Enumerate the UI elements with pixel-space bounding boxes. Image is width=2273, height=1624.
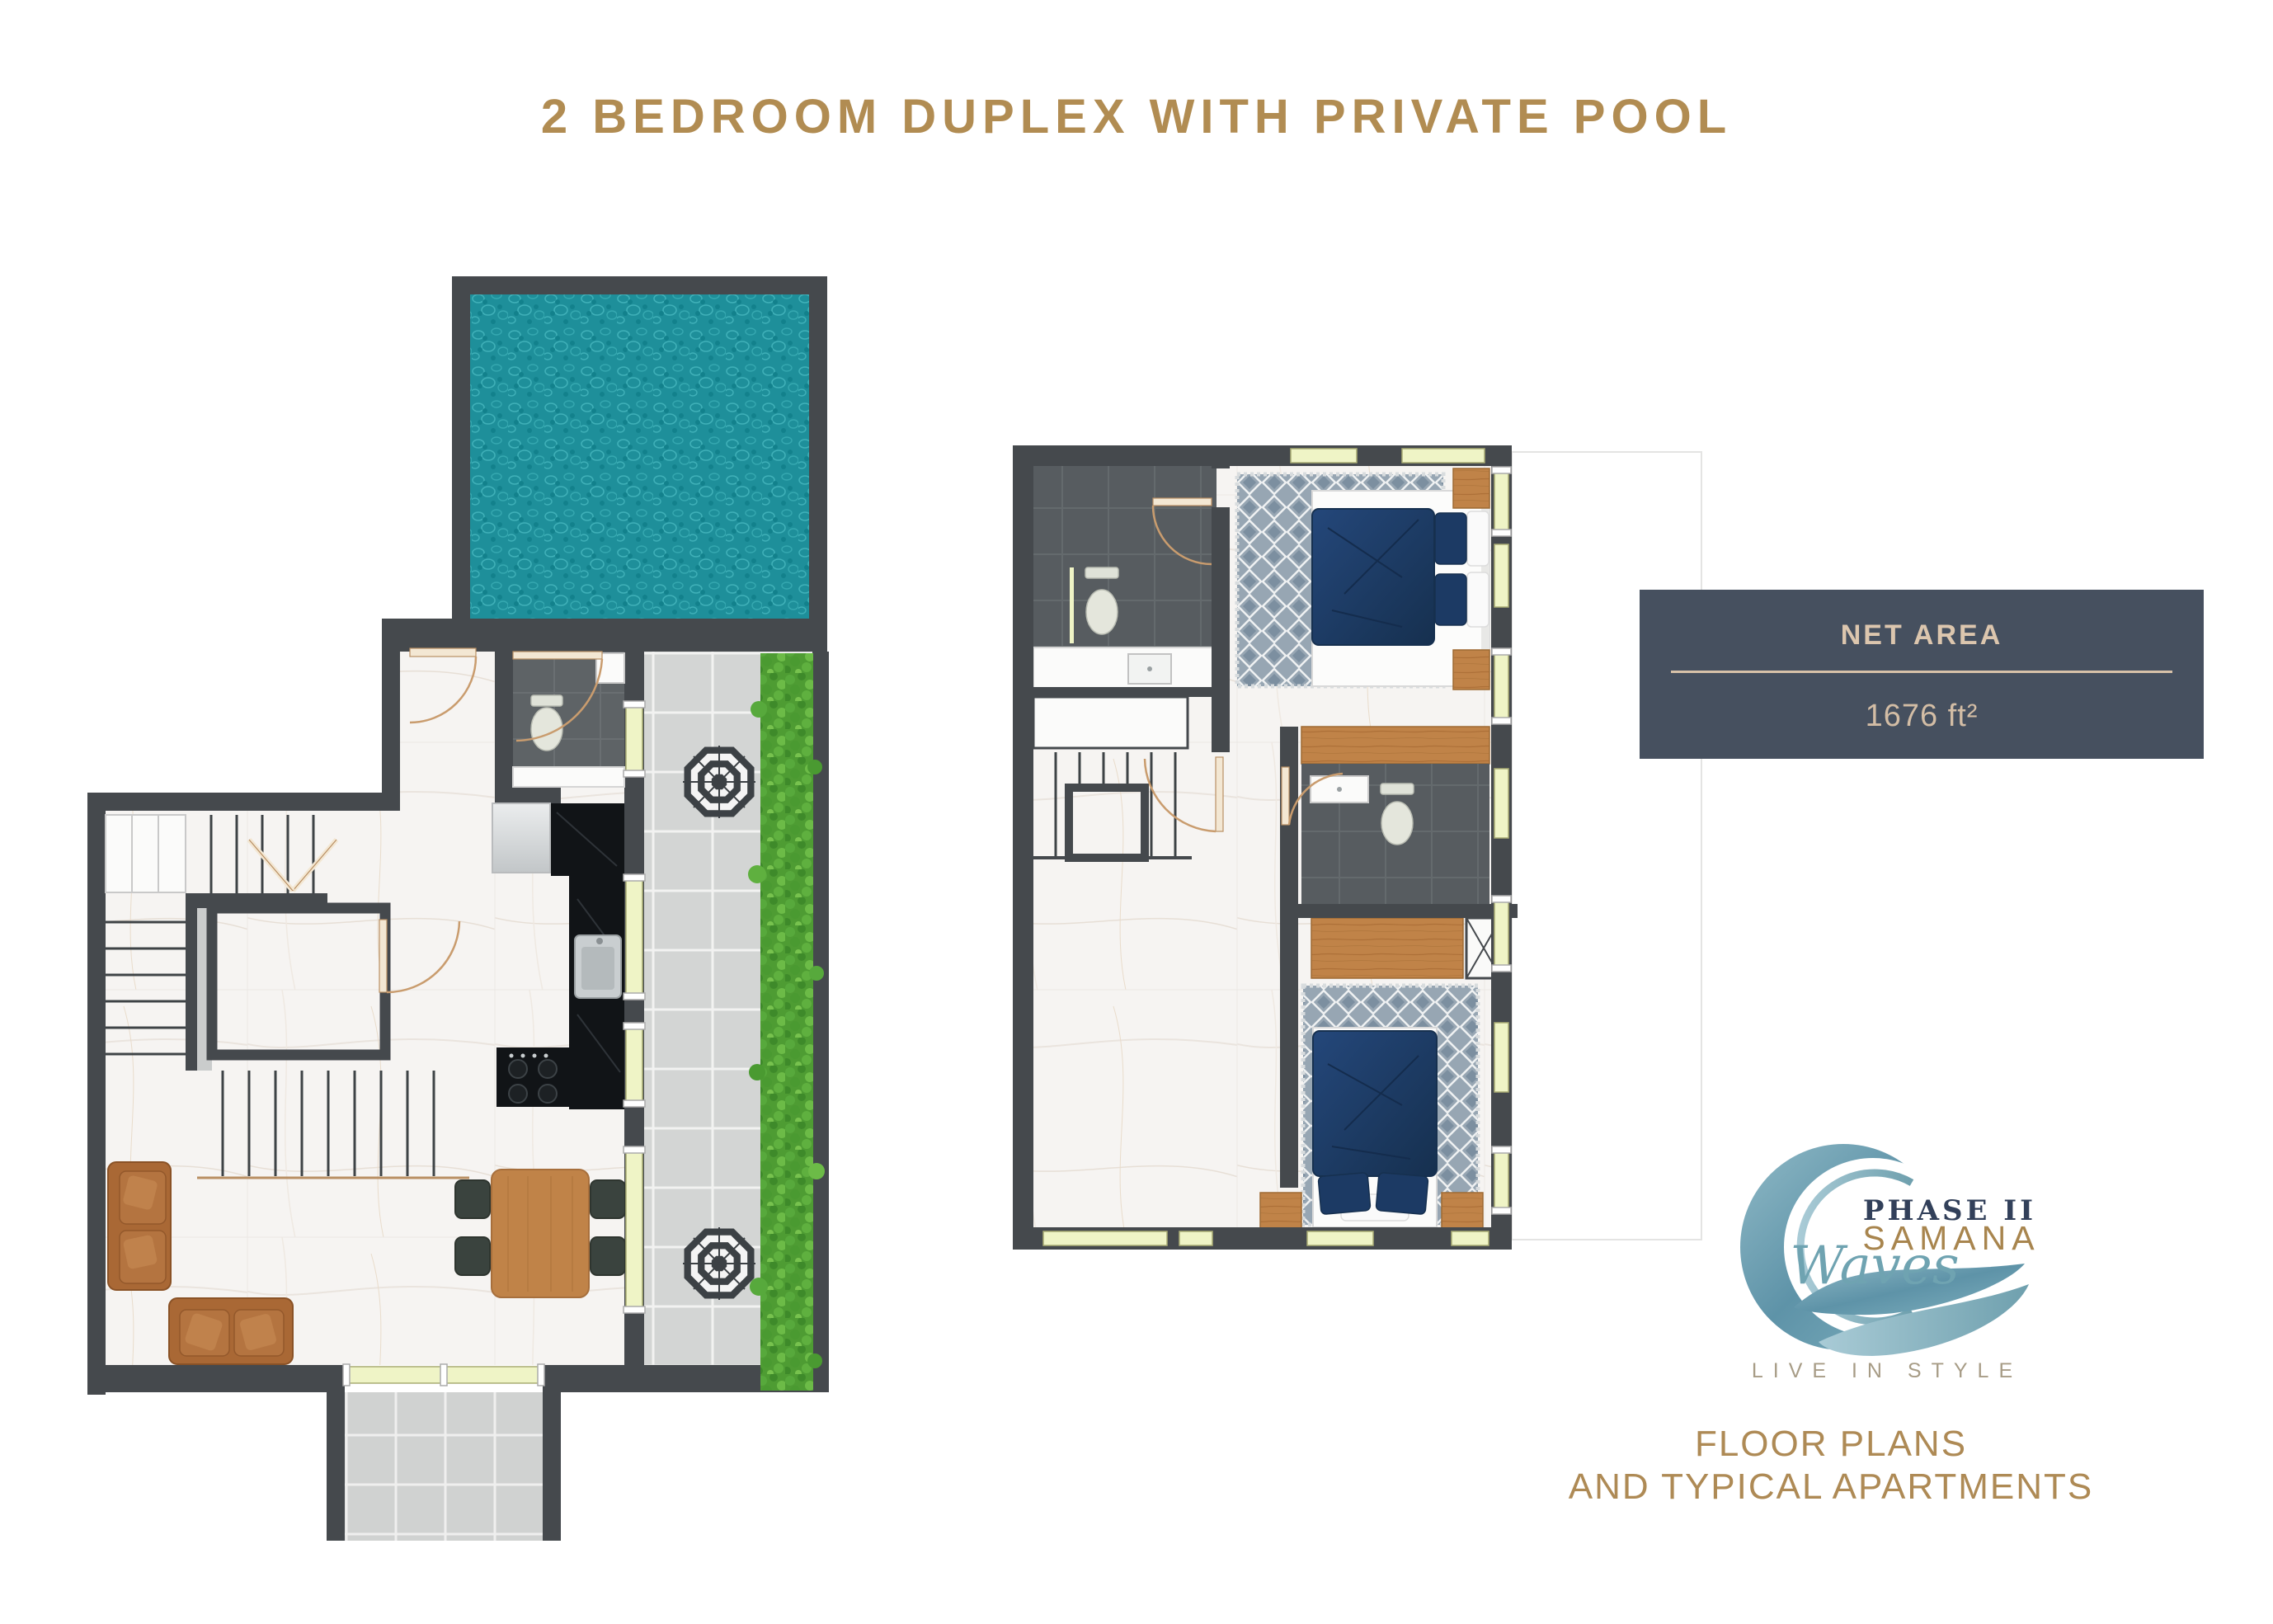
balcony-outline [1512,452,1701,1240]
net-area-label: NET AREA [1640,619,2204,652]
vanity-counter [1301,727,1489,764]
net-area-value: 1676 ft² [1640,699,2204,734]
net-area-divider [1671,671,2172,673]
nightstand [1442,1193,1483,1229]
pool [470,294,809,619]
sofa-icon [108,1162,171,1290]
toilet-icon [531,695,562,751]
closet [106,815,186,892]
upper-floor-plan [1013,445,1701,1250]
fridge-icon [492,803,550,873]
logo-tagline: LIVE IN STYLE [1737,1359,2037,1383]
sofa-icon [169,1298,293,1364]
footer-title-line2: AND TYPICAL APARTMENTS [1559,1466,2103,1508]
ground-floor-plan [87,276,829,1541]
nightstand [1453,650,1489,690]
toilet-icon [1085,567,1118,634]
page-title: 2 BEDROOM DUPLEX WITH PRIVATE POOL [0,89,2273,144]
wardrobe [1311,918,1463,978]
bed-icon [1313,1028,1437,1227]
umbrella-icon [683,746,755,818]
toilet-icon [1381,784,1414,845]
ground-bathroom [513,652,624,787]
door-leaf [513,652,602,659]
bedroom-1 [1237,468,1489,690]
entry-porch-floor [345,1392,543,1541]
brochure-page: 2 BEDROOM DUPLEX WITH PRIVATE POOL NET A… [0,0,2273,1624]
footer-title-line1: FLOOR PLANS [1608,1424,2054,1465]
logo-script-word: Waves [1755,1236,1994,1297]
door-leaf [379,920,387,992]
net-area-panel: NET AREA 1676 ft² [1640,590,2204,759]
nightstand [1453,468,1489,508]
umbrella-icon [683,1227,755,1300]
kitchen-sink-icon [575,935,621,998]
upper-bathroom-2 [1301,727,1489,904]
shower-screen [1070,567,1074,643]
nightstand [1260,1193,1301,1229]
